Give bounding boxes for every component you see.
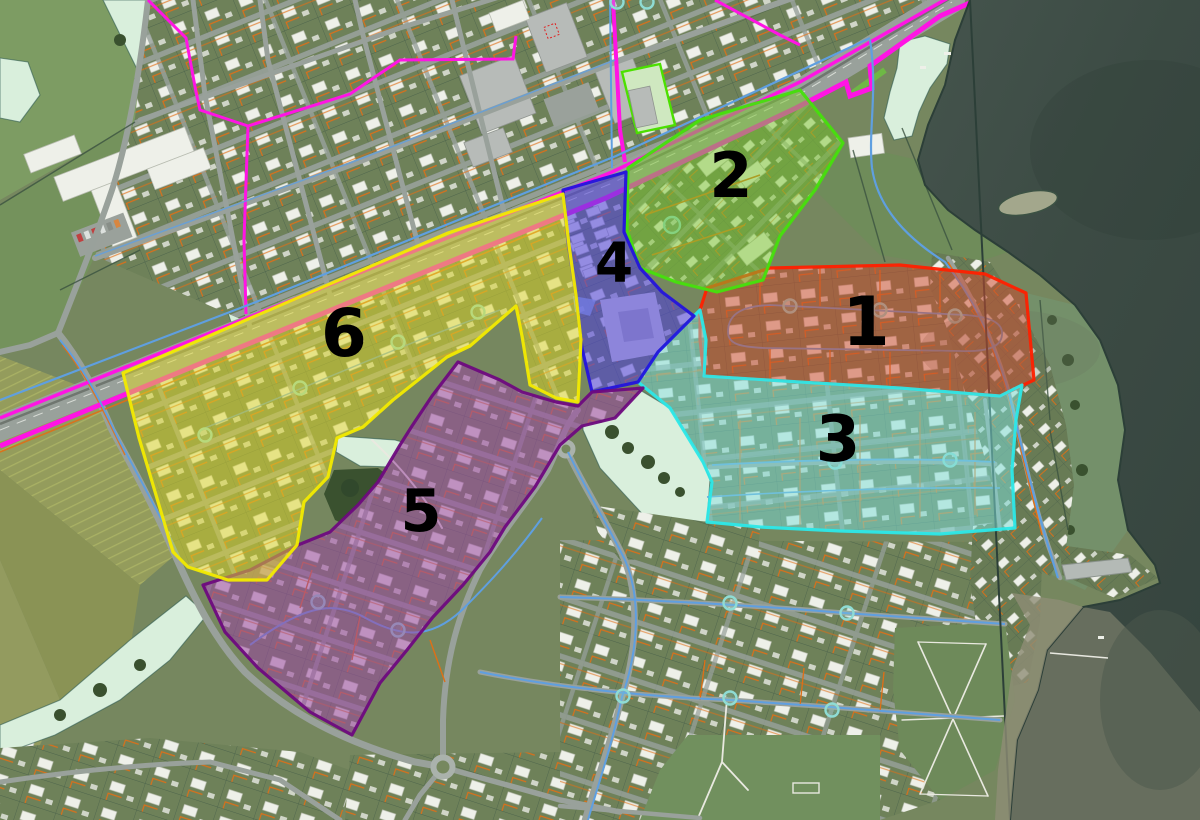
aerial-map-svg: 1 2 3 4 5 6: [0, 0, 1200, 820]
zone-2-label: 2: [709, 139, 752, 212]
zone-3-label: 3: [816, 403, 861, 477]
zone-4-label: 4: [595, 231, 633, 295]
zone-6-label: 6: [321, 295, 367, 372]
boat: [920, 66, 926, 69]
boat: [1098, 636, 1104, 639]
boat: [944, 52, 951, 55]
zone-1-label: 1: [842, 283, 889, 362]
zone-5-label: 5: [400, 476, 441, 545]
roundabout: [434, 758, 453, 777]
aerial-map-view: 1 2 3 4 5 6: [0, 0, 1200, 820]
